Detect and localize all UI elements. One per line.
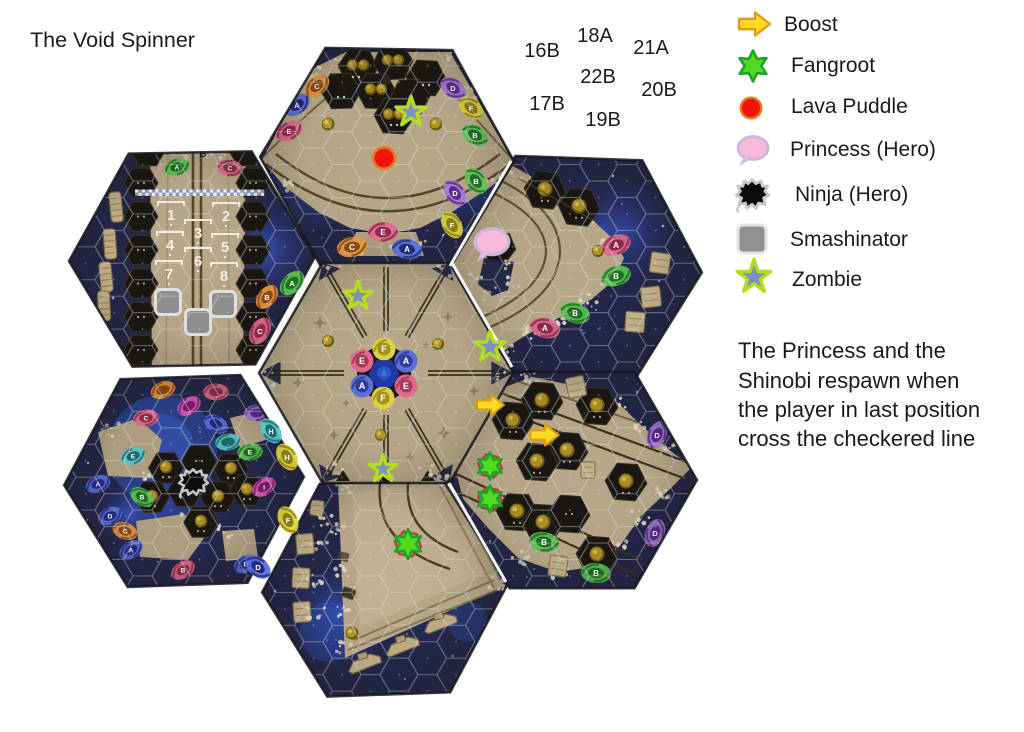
svg-text:F: F (380, 393, 386, 403)
svg-text:16B: 16B (524, 40, 560, 62)
svg-text:Shinobi respawn when: Shinobi respawn when (738, 368, 959, 393)
svg-text:E: E (403, 381, 409, 391)
svg-text:C: C (349, 243, 355, 252)
svg-text:Ninja (Hero): Ninja (Hero) (795, 183, 908, 206)
svg-text:22B: 22B (580, 66, 616, 88)
svg-text:A: A (359, 381, 366, 391)
svg-text:Boost: Boost (784, 13, 838, 36)
svg-text:Zombie: Zombie (792, 268, 862, 291)
svg-text:B: B (473, 177, 479, 186)
svg-text:F: F (286, 516, 291, 525)
svg-text:A: A (289, 279, 295, 288)
svg-text:Lava Puddle: Lava Puddle (791, 95, 908, 118)
svg-text:20B: 20B (641, 79, 677, 101)
svg-text:A: A (404, 245, 410, 254)
svg-text:C: C (257, 327, 263, 336)
svg-text:H: H (284, 453, 290, 462)
svg-text:Fangroot: Fangroot (791, 54, 875, 77)
svg-text:18A: 18A (577, 25, 613, 47)
svg-text:D: D (255, 563, 261, 572)
svg-text:E: E (359, 356, 365, 366)
svg-text:Princess (Hero): Princess (Hero) (790, 138, 936, 161)
svg-text:19B: 19B (585, 109, 621, 131)
svg-text:the player in last position: the player in last position (738, 397, 980, 422)
svg-text:cross the checkered line: cross the checkered line (738, 426, 975, 451)
svg-text:F: F (450, 221, 455, 230)
svg-text:D: D (452, 189, 458, 198)
svg-text:F: F (381, 344, 387, 354)
svg-text:E: E (380, 228, 386, 237)
svg-text:The Void Spinner: The Void Spinner (30, 28, 195, 52)
svg-text:A: A (403, 356, 410, 366)
svg-text:17B: 17B (529, 93, 565, 115)
svg-text:21A: 21A (633, 37, 669, 59)
svg-text:The Princess and the: The Princess and the (738, 338, 946, 363)
svg-text:Smashinator: Smashinator (790, 228, 908, 251)
svg-text:H: H (268, 427, 273, 436)
svg-text:B: B (264, 293, 269, 302)
